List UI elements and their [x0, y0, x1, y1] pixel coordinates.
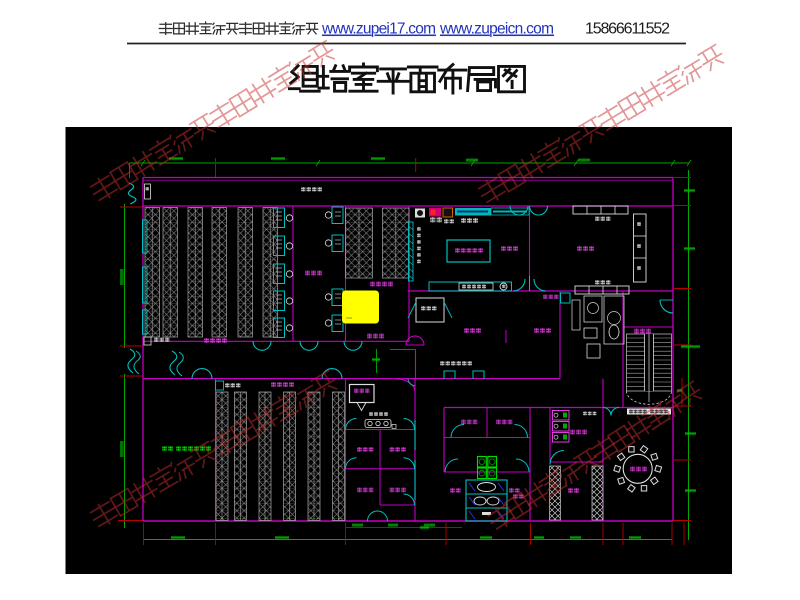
svg-text:15866611552: 15866611552 [585, 21, 670, 38]
svg-text:www.zupei17.com: www.zupei17.com [321, 21, 436, 38]
svg-text:www.zupeicn.com: www.zupeicn.com [439, 21, 554, 38]
